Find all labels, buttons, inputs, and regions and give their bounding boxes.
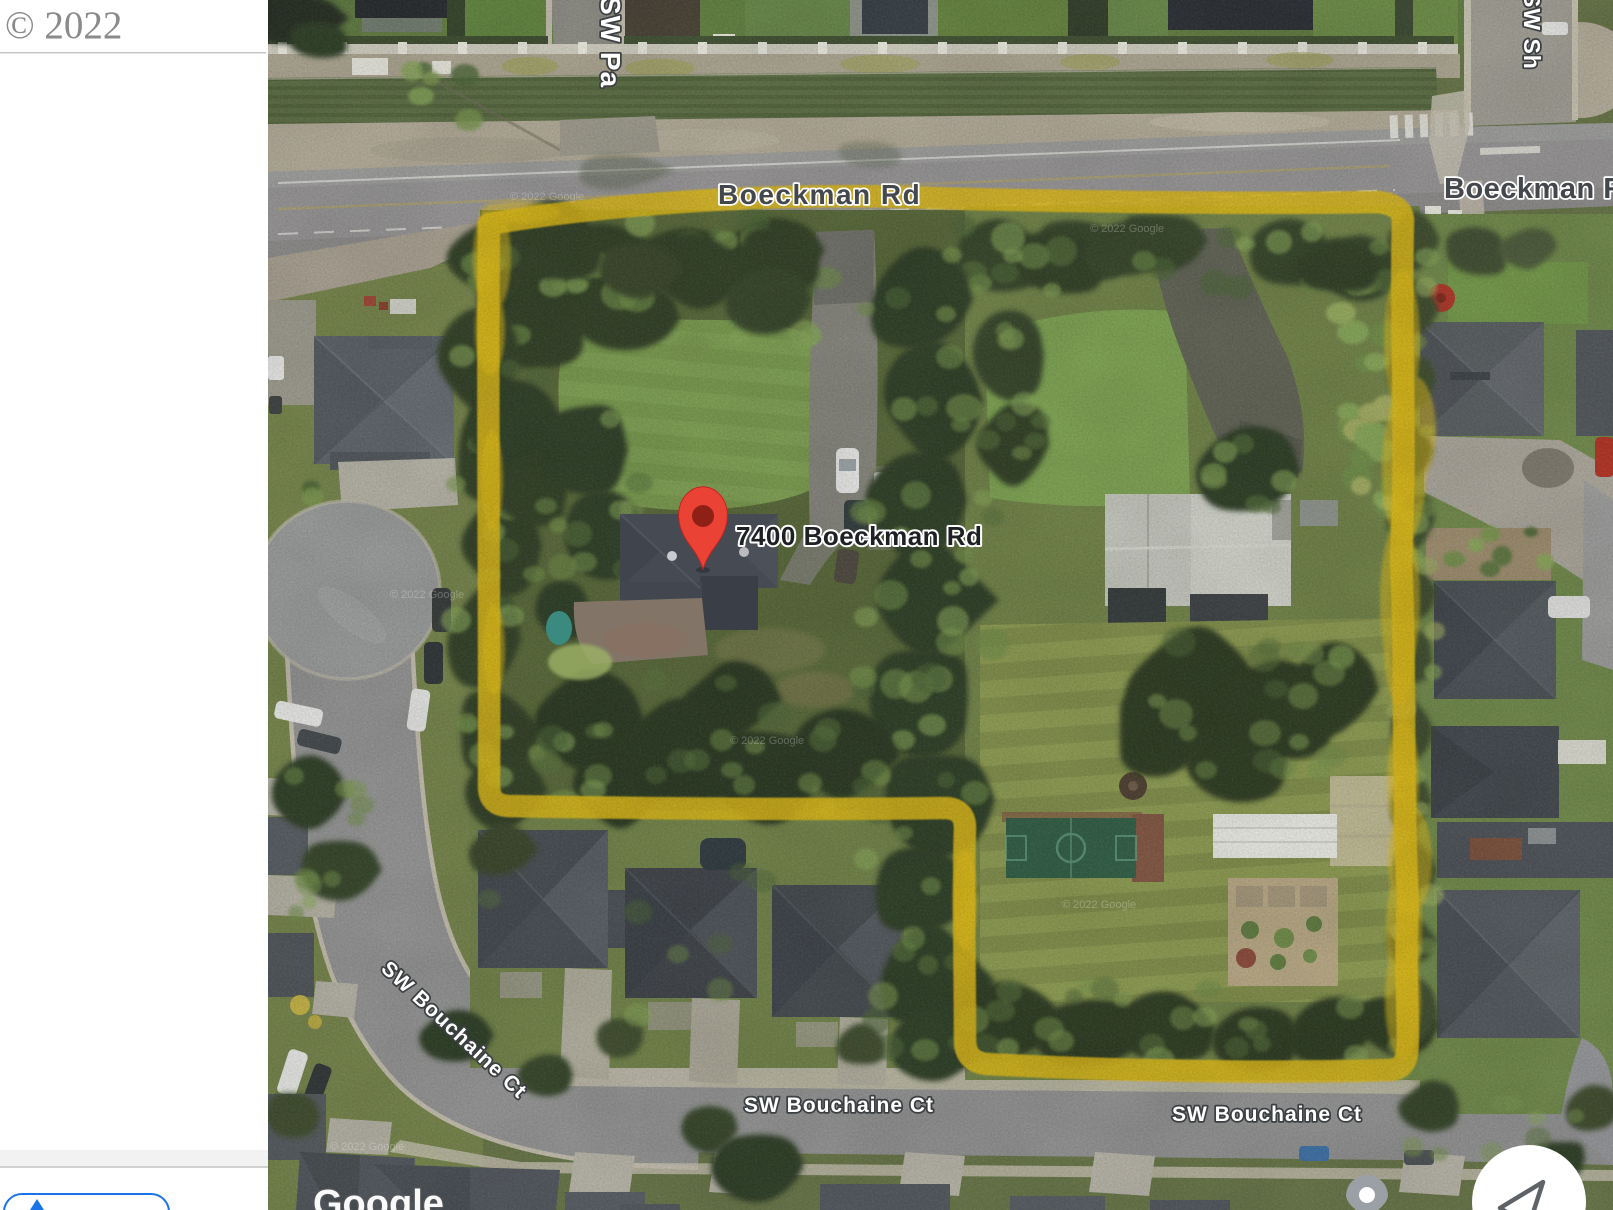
svg-text:SW Bouchaine Ct: SW Bouchaine Ct xyxy=(744,1094,934,1117)
svg-text:© 2022 Google: © 2022 Google xyxy=(330,1141,404,1153)
svg-text:© 2022 Google: © 2022 Google xyxy=(1090,223,1164,235)
svg-text:© 2022 Google: © 2022 Google xyxy=(510,191,584,203)
svg-text:SW Pa: SW Pa xyxy=(595,0,626,88)
svg-text:Boeckman R: Boeckman R xyxy=(1444,173,1613,205)
svg-text:© 2022 Google: © 2022 Google xyxy=(1062,899,1136,911)
svg-text:7400 Boeckman Rd: 7400 Boeckman Rd xyxy=(736,521,982,551)
svg-text:© 2022 Google: © 2022 Google xyxy=(390,589,464,601)
svg-text:© 2022: © 2022 xyxy=(5,4,122,47)
svg-text:Google: Google xyxy=(313,1183,444,1210)
svg-text:SW Bouchaine Ct: SW Bouchaine Ct xyxy=(1172,1103,1362,1126)
svg-text:© 2022 Google: © 2022 Google xyxy=(730,735,804,747)
svg-text:SW Sh: SW Sh xyxy=(1519,0,1545,70)
svg-text:Boeckman Rd: Boeckman Rd xyxy=(718,179,921,210)
